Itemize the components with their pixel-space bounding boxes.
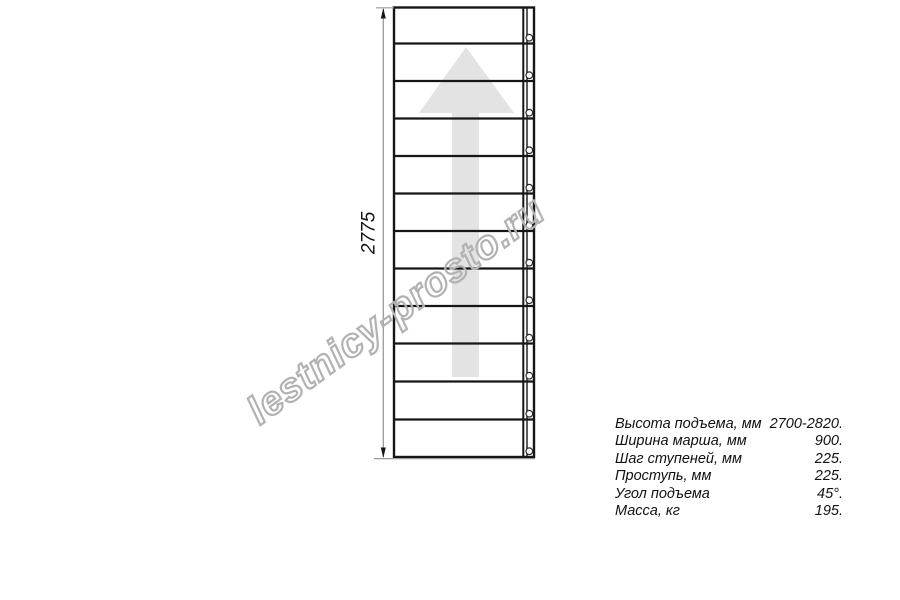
spec-table: Высота подъема, мм 2700-2820. Ширина мар… — [615, 416, 843, 521]
fastener-circle — [526, 147, 533, 154]
fastener-circle — [526, 297, 533, 304]
fastener-circle — [526, 410, 533, 417]
fastener-circle — [526, 109, 533, 116]
spec-value: 45°. — [817, 486, 843, 503]
spec-row: Высота подъема, мм 2700-2820. — [615, 416, 843, 433]
fastener-circle — [526, 72, 533, 79]
spec-row: Масса, кг 195. — [615, 503, 843, 520]
spec-row: Угол подъема 45°. — [615, 486, 843, 503]
drawing-canvas: 2775 lestnicy-prosto.ru Высота подъема, … — [0, 0, 900, 600]
fastener-circle — [526, 34, 533, 41]
dimension-label: 2775 — [359, 211, 380, 255]
spec-row: Шаг ступеней, мм 225. — [615, 451, 843, 468]
spec-row: Проступь, мм 225. — [615, 468, 843, 485]
fastener-circle — [526, 259, 533, 266]
spec-label: Угол подъема — [615, 486, 710, 503]
spec-label: Масса, кг — [615, 503, 680, 520]
spec-value: 195. — [815, 503, 843, 520]
spec-label: Шаг ступеней, мм — [615, 451, 742, 468]
spec-value: 225. — [815, 468, 843, 485]
fastener-circle — [526, 448, 533, 455]
fastener-circle — [526, 184, 533, 191]
spec-value: 225. — [815, 451, 843, 468]
spec-row: Ширина марша, мм 900. — [615, 433, 843, 450]
spec-label: Проступь, мм — [615, 468, 711, 485]
dimension-arrow-up — [381, 8, 386, 19]
fastener-circle — [526, 334, 533, 341]
spec-value: 2700-2820. — [770, 416, 843, 433]
spec-label: Высота подъема, мм — [615, 416, 762, 433]
up-direction-arrow — [419, 47, 514, 377]
spec-value: 900. — [815, 433, 843, 450]
dimension-arrow-down — [381, 448, 386, 459]
fastener-circle — [526, 222, 533, 229]
fastener-circle — [526, 372, 533, 379]
spec-label: Ширина марша, мм — [615, 433, 747, 450]
